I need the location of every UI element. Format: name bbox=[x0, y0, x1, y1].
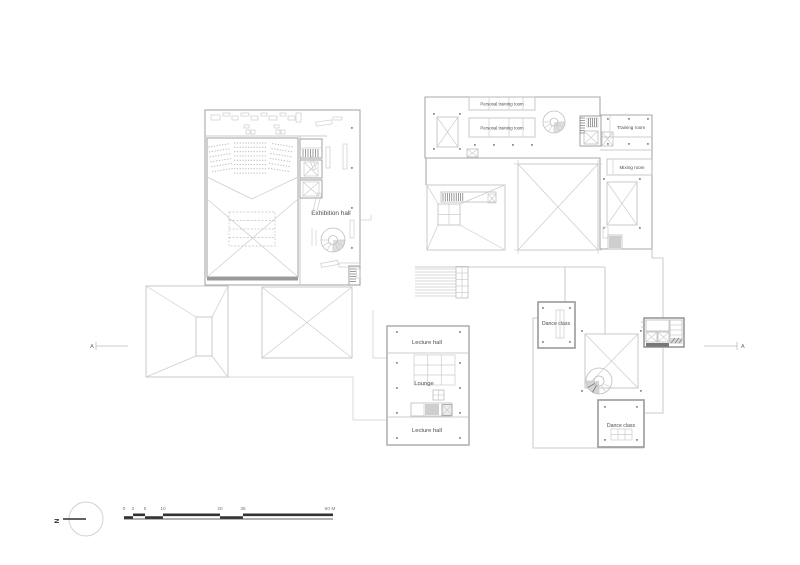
section-marker-right-label: A bbox=[741, 344, 745, 350]
spiral-stair-icon-fitness bbox=[543, 111, 565, 133]
personal-training-rooms: Personal training room Personal training… bbox=[467, 97, 535, 157]
scale-tick-35: 35 bbox=[240, 506, 246, 512]
personal-training-room-b-label: Personal training room bbox=[480, 126, 524, 131]
skylight-top-left bbox=[433, 113, 461, 150]
section-marker-left-label: A bbox=[90, 344, 94, 350]
stage-edge bbox=[207, 277, 298, 281]
scale-tick-0: 0 bbox=[123, 506, 126, 512]
scale-tick-60: 60 M bbox=[325, 506, 336, 512]
training-room-label: Training room bbox=[617, 125, 645, 130]
dance-area: Dance class Dance class bbox=[533, 249, 684, 448]
dance-class-lower-label: Dance class bbox=[607, 423, 636, 429]
training-room: Training room bbox=[600, 115, 652, 150]
mixing-room: Mixing room bbox=[607, 159, 652, 175]
dance-class-upper-room: Dance class bbox=[538, 302, 575, 348]
exhibition-roofs bbox=[146, 286, 387, 420]
scale-tick-2: 2 bbox=[132, 506, 135, 512]
skylight-roof-plan bbox=[262, 287, 352, 358]
scale-tick-5: 5 bbox=[144, 506, 147, 512]
lounge-label: Lounge bbox=[414, 381, 433, 387]
fitness-building: Personal training room Personal training… bbox=[415, 97, 652, 298]
exhibition-zone: Exhibition hall bbox=[309, 127, 371, 285]
spiral-stair-icon bbox=[321, 228, 345, 252]
mixing-room-label: Mixing room bbox=[619, 165, 644, 170]
scale-tick-20: 20 bbox=[217, 506, 223, 512]
section-marker-left: A bbox=[90, 342, 128, 350]
hipped-roof-plan bbox=[146, 286, 228, 377]
dance-class-lower-room: Dance class bbox=[598, 400, 644, 447]
scale-bar: 0 2 5 10 20 35 60 M bbox=[123, 506, 336, 519]
dance-class-upper-label: Dance class bbox=[542, 321, 571, 327]
lecture-hall-upper-label: Lecture hall bbox=[412, 340, 442, 346]
skylight-lower-right bbox=[603, 178, 641, 229]
terrace-outline bbox=[228, 310, 387, 420]
hipped-roof-plan-fitness bbox=[427, 185, 505, 250]
north-arrow: N bbox=[54, 502, 103, 536]
seating-rows bbox=[208, 143, 294, 173]
floor-plan-drawing: Exhibition hall bbox=[0, 0, 800, 565]
lecture-hall-block: Lecture hall Lounge Lecture hall bbox=[387, 326, 469, 445]
exterior-stair-bottom bbox=[603, 227, 622, 249]
auditorium bbox=[207, 138, 298, 281]
service-pod bbox=[641, 318, 684, 347]
personal-training-room-a-label: Personal training room bbox=[480, 102, 524, 107]
terrace-stair-west bbox=[415, 267, 605, 299]
fitness-building-outline bbox=[425, 97, 652, 249]
scale-tick-10: 10 bbox=[160, 506, 166, 512]
lecture-stair-unit bbox=[411, 403, 452, 416]
spiral-stair-icon-dance bbox=[586, 368, 612, 394]
section-marker-right: A bbox=[704, 342, 745, 350]
lecture-hall-lower-label: Lecture hall bbox=[412, 428, 442, 434]
floor-plan-canvas: Exhibition hall bbox=[0, 0, 800, 565]
central-skylight bbox=[514, 160, 602, 254]
stair-core bbox=[300, 139, 322, 198]
north-label: N bbox=[54, 518, 61, 523]
exhibition-building: Exhibition hall bbox=[205, 110, 371, 285]
elevator-stair-core bbox=[580, 116, 613, 146]
foyer-furniture bbox=[211, 113, 342, 134]
